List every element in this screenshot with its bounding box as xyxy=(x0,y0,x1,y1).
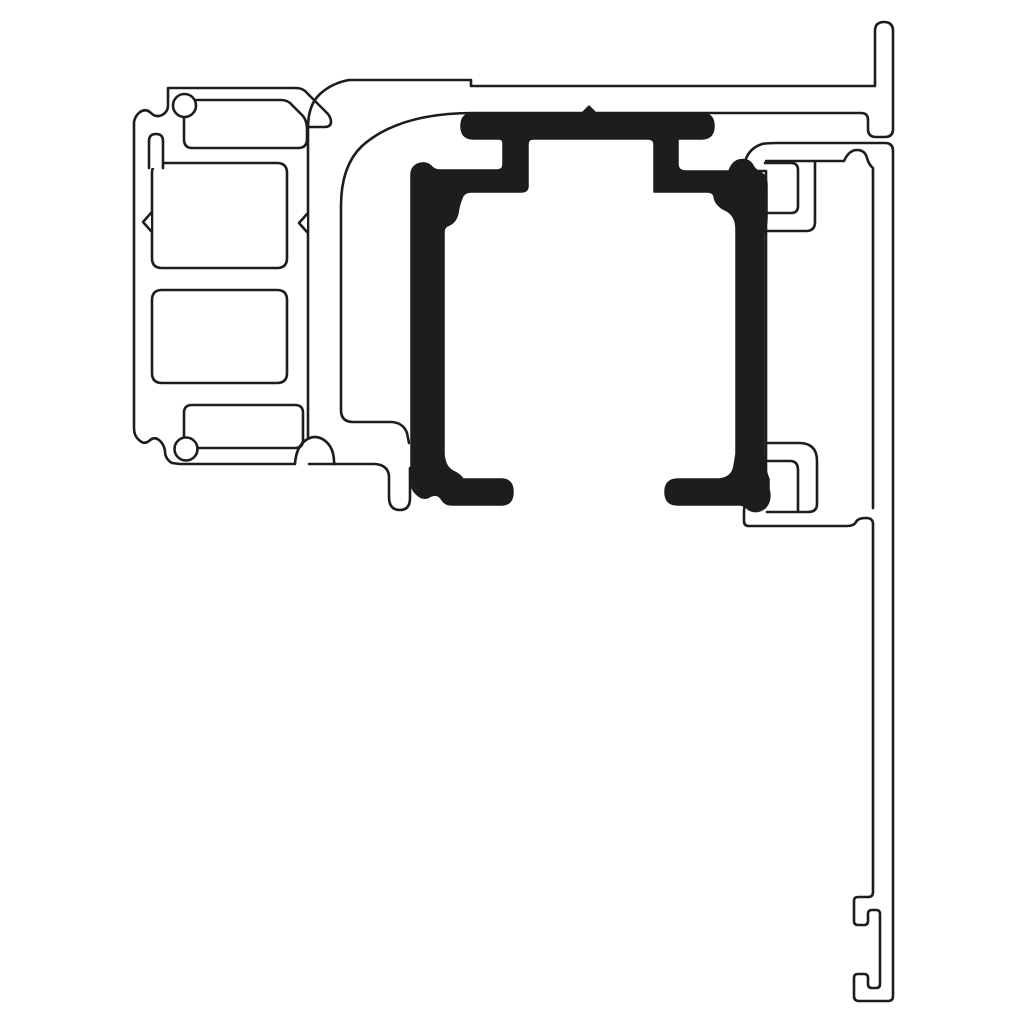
frame-profile-inner-edge xyxy=(766,150,873,508)
left-profile-bottom-slot-eye xyxy=(175,438,198,461)
head-profile-outline xyxy=(308,22,893,443)
left-profile-chamber-lower xyxy=(152,290,287,383)
drawing-canvas xyxy=(0,0,1024,1024)
left-profile-top-slot-eye xyxy=(173,94,196,117)
left-profile-notch-right xyxy=(299,214,307,232)
frame-clip-top-inner xyxy=(765,163,798,213)
left-profile-notch-left xyxy=(143,213,151,231)
profile-cross-section-drawing xyxy=(0,0,1024,1024)
frame-clip-bottom-inner xyxy=(767,461,798,511)
left-profile-chamber-upper xyxy=(152,163,287,268)
track-insert xyxy=(411,106,770,512)
left-profile-chamber-upper-stub xyxy=(149,134,163,168)
left-profile-top-slot xyxy=(184,100,307,148)
frame-clip-bottom-outer xyxy=(767,443,817,512)
frame-profile-outline xyxy=(744,143,893,1001)
frame-clip-top-outer xyxy=(765,163,815,231)
left-profile-bottom-slot xyxy=(184,405,303,448)
head-profile-pocket xyxy=(309,464,410,510)
left-profile-top-hook xyxy=(296,88,331,127)
